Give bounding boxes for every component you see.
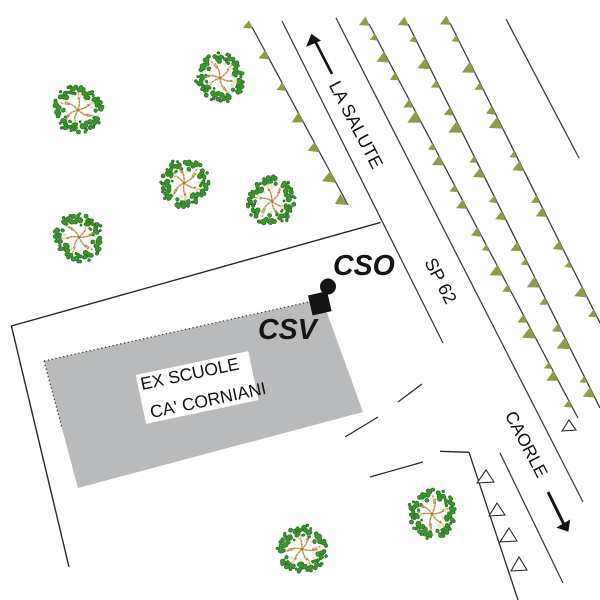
svg-text:CSO: CSO — [333, 250, 395, 282]
svg-text:CSV: CSV — [258, 314, 319, 346]
